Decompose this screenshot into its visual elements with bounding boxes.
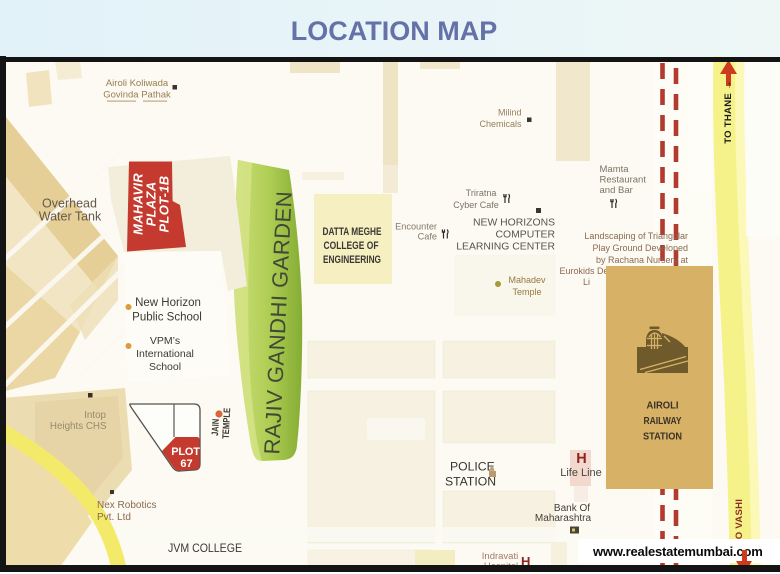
svg-text:Triratna: Triratna [466, 188, 497, 198]
svg-text:Public School: Public School [132, 312, 202, 324]
svg-text:Cafe: Cafe [418, 232, 437, 242]
svg-text:Govinda Pathak: Govinda Pathak [103, 90, 171, 101]
svg-text:Li: Li [583, 277, 590, 287]
svg-text:COMPUTER: COMPUTER [496, 230, 556, 241]
svg-text:PLOT: PLOT [171, 446, 200, 458]
svg-text:Milind: Milind [498, 108, 522, 118]
svg-text:PLOT-1B: PLOT-1B [157, 176, 172, 233]
svg-text:COLLEGE OF: COLLEGE OF [324, 240, 379, 252]
svg-text:Pvt. Ltd: Pvt. Ltd [97, 512, 131, 523]
svg-text:LOCATION MAP: LOCATION MAP [291, 16, 497, 46]
svg-text:School: School [149, 361, 181, 373]
svg-text:LEARNING CENTER: LEARNING CENTER [456, 242, 555, 253]
svg-text:Intop: Intop [84, 410, 106, 421]
svg-text:Airoli Koliwada: Airoli Koliwada [106, 78, 169, 89]
svg-text:RAILWAY: RAILWAY [644, 415, 682, 427]
svg-text:Water Tank: Water Tank [39, 210, 102, 224]
svg-text:Mamta: Mamta [600, 164, 630, 175]
svg-text:JVM COLLEGE: JVM COLLEGE [168, 541, 242, 555]
svg-text:NEW HORIZONS: NEW HORIZONS [473, 218, 555, 229]
svg-text:AIROLI: AIROLI [647, 400, 679, 412]
svg-text:ENGINEERING: ENGINEERING [323, 254, 381, 266]
svg-text:International: International [136, 348, 194, 360]
svg-text:Overhead: Overhead [42, 197, 97, 211]
svg-text:Encounter: Encounter [395, 222, 437, 232]
svg-text:Maharashtra: Maharashtra [535, 513, 592, 524]
svg-text:New Horizon: New Horizon [135, 297, 201, 309]
svg-text:TO VASHI: TO VASHI [734, 499, 745, 545]
svg-text:H: H [576, 451, 586, 467]
svg-text:Landscaping of Triangular: Landscaping of Triangular [584, 231, 688, 241]
svg-text:VPM’s: VPM’s [150, 335, 180, 347]
svg-text:and Bar: and Bar [600, 185, 633, 196]
svg-text:DATTA MEGHE: DATTA MEGHE [323, 226, 382, 238]
svg-text:STATION: STATION [643, 431, 682, 443]
svg-text:Play Ground Developed: Play Ground Developed [592, 243, 688, 253]
svg-text:STATION: STATION [445, 475, 496, 489]
svg-text:POLICE: POLICE [450, 460, 495, 474]
svg-text:TO THANE →: TO THANE → [723, 80, 734, 144]
svg-text:Life Line: Life Line [560, 467, 602, 479]
svg-text:67: 67 [180, 458, 192, 470]
svg-text:TEMPLE: TEMPLE [221, 408, 234, 440]
svg-text:Heights CHS: Heights CHS [50, 421, 107, 432]
svg-text:Mahadev: Mahadev [508, 275, 546, 285]
svg-text:Restaurant: Restaurant [600, 175, 647, 186]
svg-text:Cyber Cafe: Cyber Cafe [453, 200, 499, 210]
svg-text:Nex Robotics: Nex Robotics [97, 500, 156, 511]
svg-text:by Rachana Nursery at: by Rachana Nursery at [596, 255, 689, 265]
svg-text:Chemicals: Chemicals [479, 119, 522, 129]
svg-text:Temple: Temple [512, 287, 541, 297]
svg-text:www.realestatemumbai.com: www.realestatemumbai.com [592, 544, 763, 559]
